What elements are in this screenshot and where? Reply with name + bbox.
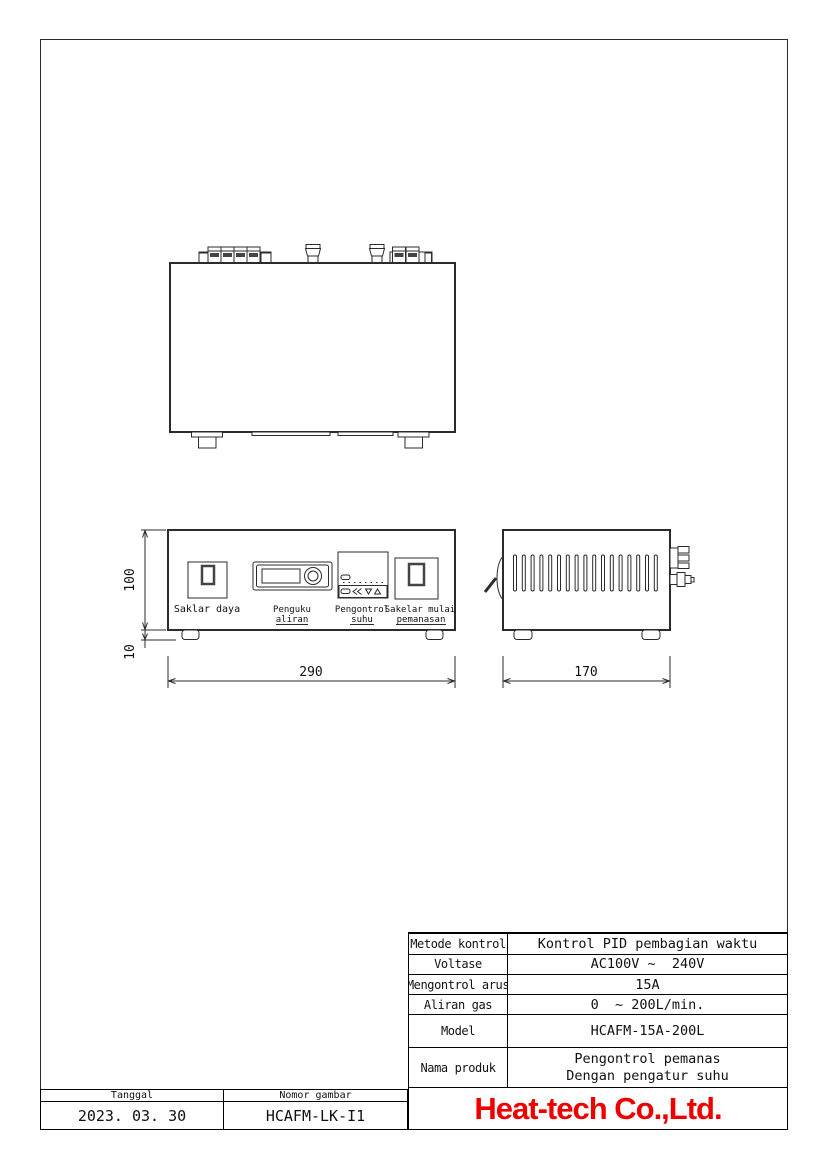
heating-start-switch [395, 558, 438, 599]
side-view [485, 530, 694, 640]
dimension-height-value: 100 [123, 568, 138, 591]
spec-value-metode-kontrol: Kontrol PID pembagian waktu [508, 934, 787, 955]
terminal-2 [221, 247, 234, 263]
power-switch-label: Saklar daya [174, 604, 240, 615]
dimension-depth-value: 170 [574, 665, 597, 680]
side-foot-left [514, 630, 532, 640]
front-foot-right [426, 630, 443, 640]
spec-value-mengontrol-arus: 15A [508, 975, 787, 995]
dimension-depth-170: 170 [503, 656, 670, 688]
top-view-foot-left [192, 432, 223, 448]
front-foot-left [182, 630, 199, 640]
bottom-recess-2 [338, 432, 393, 436]
temperature-controller [338, 552, 388, 598]
dimension-width-290: 290 [168, 656, 455, 688]
spec-label-nama-produk: Nama produk [409, 1048, 508, 1088]
date-label: Tanggal [41, 1090, 224, 1102]
side-terminal [670, 547, 689, 569]
terminal-3 [234, 247, 247, 263]
flow-meter-label-1: Penguku [273, 605, 311, 615]
product-name-line1: Pengontrol pemanas [574, 1051, 720, 1068]
flow-meter [253, 562, 332, 590]
top-view [170, 245, 455, 449]
spec-value-voltase: AC100V ~ 240V [508, 955, 787, 976]
spec-label-mengontrol-arus: Mengontrol arus [409, 975, 508, 995]
date-value: 2023. 03. 30 [41, 1102, 224, 1129]
drawing-number-value: HCAFM-LK-I1 [224, 1102, 407, 1129]
title-block: Tanggal Nomor gambar 2023. 03. 30 HCAFM-… [40, 1089, 408, 1130]
company-logo: Heat-tech Co.,Ltd. [409, 1088, 787, 1129]
drawing-number-label: Nomor gambar [224, 1090, 407, 1102]
spec-value-model: HCAFM-15A-200L [508, 1015, 787, 1048]
drawing-sheet: Saklar daya Penguku aliran Pengontrol su… [0, 0, 826, 1169]
side-fitting [670, 573, 694, 587]
front-view: Saklar daya Penguku aliran Pengontrol su… [168, 530, 455, 640]
power-cord [485, 556, 503, 600]
pneumatic-fitting-1 [306, 245, 321, 264]
dimension-feet-10: 10 [123, 630, 176, 660]
spec-label-metode-kontrol: Metode kontrol [409, 934, 508, 955]
terminal-block-b [390, 247, 432, 263]
start-switch-label-1: Sakelar mulai [385, 605, 455, 615]
pneumatic-fitting-2 [370, 245, 385, 264]
terminal-1 [208, 247, 221, 263]
spec-value-nama-produk: Pengontrol pemanas Dengan pengatur suhu [508, 1048, 787, 1088]
terminal-block-a [199, 247, 271, 263]
spec-table: Metode kontrol Kontrol PID pembagian wak… [408, 932, 788, 1130]
spec-label-voltase: Voltase [409, 955, 508, 976]
bottom-recess-1 [252, 432, 330, 436]
top-view-foot-right [398, 432, 429, 448]
spec-value-aliran-gas: 0 ~ 200L/min. [508, 995, 787, 1015]
temp-controller-label-1: Pengontrol [335, 605, 389, 615]
temp-controller-label-2: suhu [351, 615, 373, 625]
product-name-line2: Dengan pengatur suhu [566, 1068, 729, 1085]
terminal-4 [247, 247, 260, 263]
spec-label-model: Model [409, 1015, 508, 1048]
top-view-body [170, 263, 455, 432]
dimension-height-100: 100 [123, 530, 166, 630]
dimension-width-value: 290 [299, 665, 322, 680]
spec-label-aliran-gas: Aliran gas [409, 995, 508, 1015]
dimension-feet-value: 10 [123, 644, 138, 660]
power-switch [188, 562, 227, 598]
flow-meter-label-2: aliran [276, 615, 309, 625]
start-switch-label-2: pemanasan [397, 615, 446, 625]
side-foot-right [642, 630, 660, 640]
